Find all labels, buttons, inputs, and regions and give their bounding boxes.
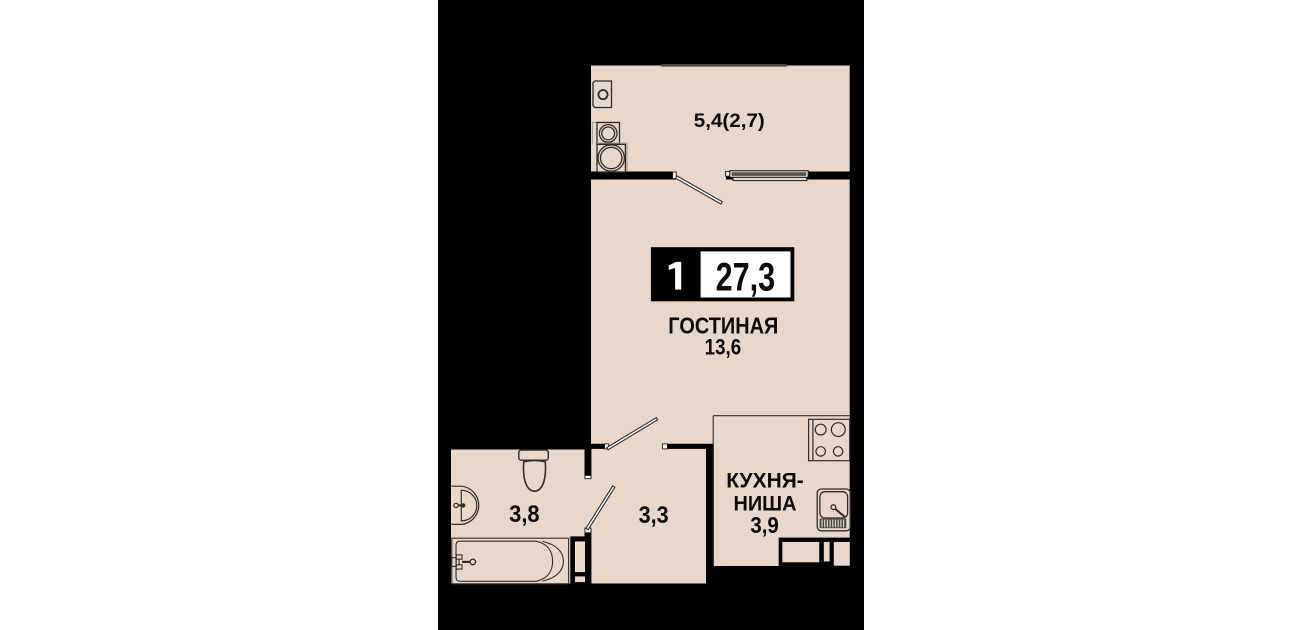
svg-text:КУХНЯ-: КУХНЯ- (726, 470, 804, 493)
svg-text:13,6: 13,6 (705, 334, 742, 359)
svg-text:5,4(2,7): 5,4(2,7) (694, 110, 765, 132)
svg-text:3,9: 3,9 (750, 512, 779, 538)
svg-text:3,8: 3,8 (509, 501, 540, 528)
svg-text:3,3: 3,3 (639, 502, 669, 529)
svg-text:27,3: 27,3 (716, 255, 776, 299)
